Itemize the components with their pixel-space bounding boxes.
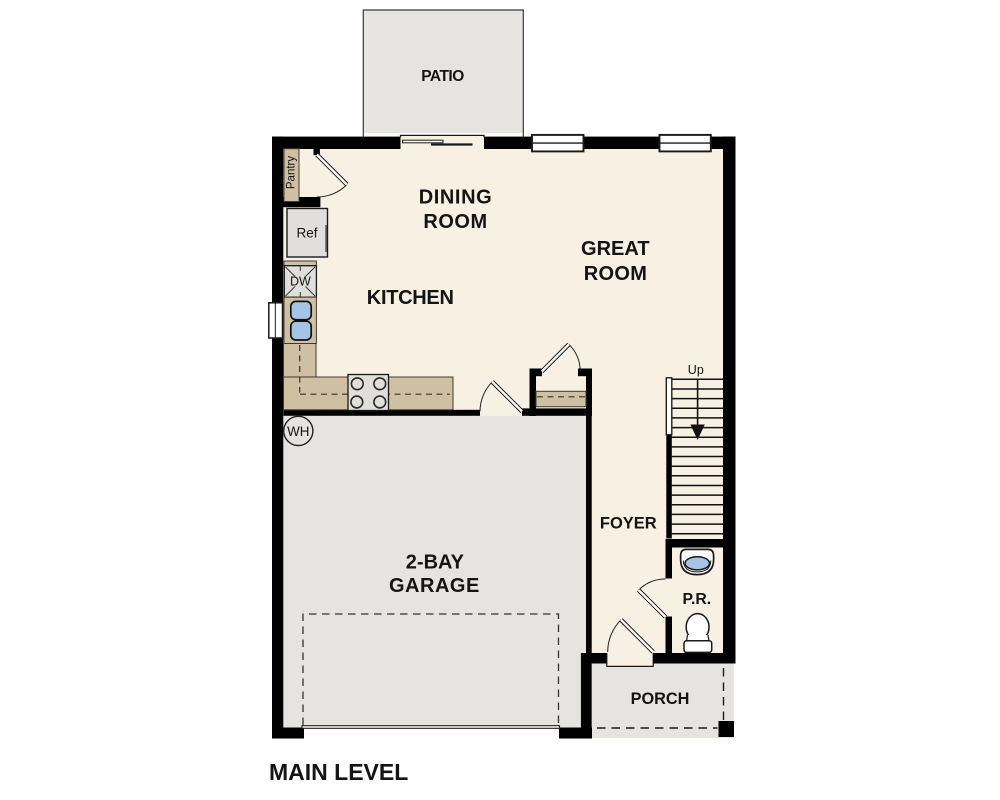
svg-text:DW: DW (290, 275, 311, 289)
svg-text:MAIN LEVEL: MAIN LEVEL (269, 759, 408, 785)
svg-text:DINING: DINING (419, 186, 493, 208)
svg-text:GREAT: GREAT (581, 238, 650, 260)
svg-text:Up: Up (688, 363, 704, 377)
svg-text:2-BAY: 2-BAY (406, 551, 465, 573)
svg-text:WH: WH (287, 424, 309, 439)
svg-text:Pantry: Pantry (286, 156, 298, 189)
svg-text:ROOM: ROOM (584, 263, 647, 285)
svg-text:Ref: Ref (296, 226, 317, 241)
svg-text:P.R.: P.R. (682, 591, 711, 608)
svg-text:FOYER: FOYER (600, 515, 657, 533)
svg-text:KITCHEN: KITCHEN (367, 287, 454, 309)
svg-text:GARAGE: GARAGE (389, 575, 480, 597)
svg-text:ROOM: ROOM (423, 211, 487, 233)
svg-text:PORCH: PORCH (631, 690, 690, 708)
svg-text:PATIO: PATIO (421, 68, 464, 85)
